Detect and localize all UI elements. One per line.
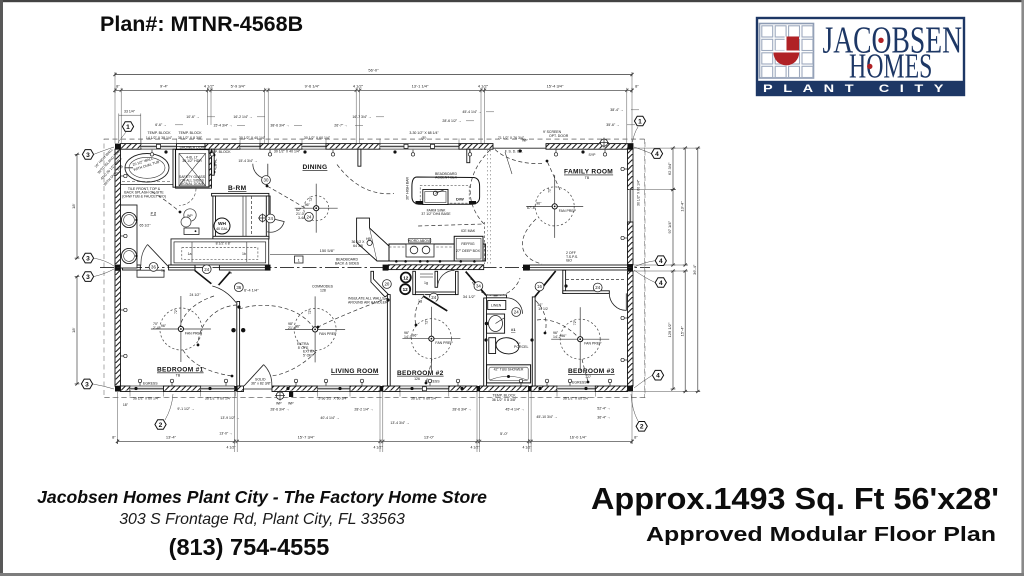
svg-text:4 1/2": 4 1/2"	[470, 445, 480, 449]
svg-text:Approx.1493 Sq. Ft 56'x28': Approx.1493 Sq. Ft 56'x28'	[591, 482, 999, 516]
svg-text:3: 3	[86, 274, 90, 281]
svg-text:129 1/2": 129 1/2"	[667, 322, 672, 337]
svg-text:5' OFF: 5' OFF	[298, 346, 309, 350]
svg-text:1a: 1a	[188, 252, 192, 256]
svg-text:3: 3	[85, 381, 89, 388]
svg-text:45'-10 3/4" →: 45'-10 3/4" →	[536, 415, 557, 419]
svg-text:36'-4" →: 36'-4" →	[597, 416, 610, 420]
svg-text:9'-6 1/4": 9'-6 1/4"	[305, 84, 320, 89]
svg-text:2: 2	[640, 424, 644, 431]
svg-text:# 2: # 2	[151, 211, 157, 216]
svg-text:LINEN: LINEN	[491, 304, 502, 308]
svg-text:D/W: D/W	[456, 197, 464, 202]
svg-text:4: 4	[655, 151, 659, 158]
svg-text:16'-2 1/4" →: 16'-2 1/4" →	[233, 115, 252, 119]
svg-text:72": 72"	[309, 196, 313, 202]
svg-text:Jacobsen Homes Plant City - Th: Jacobsen Homes Plant City - The Factory …	[37, 487, 487, 507]
svg-text:8": 8"	[635, 84, 639, 89]
svg-text:1g: 1g	[424, 281, 428, 285]
svg-text:21'-4": 21'-4"	[288, 326, 298, 330]
svg-text:(813) 754-4555: (813) 754-4555	[169, 534, 330, 560]
svg-text:4 1/2": 4 1/2"	[522, 445, 532, 449]
svg-text:5'-9 3/4": 5'-9 3/4"	[231, 84, 246, 89]
svg-text:4 1/2": 4 1/2"	[226, 445, 236, 449]
svg-text:30 1/2" X 40 1/4": 30 1/2" X 40 1/4"	[239, 136, 266, 140]
svg-text:36 1/2" X 60 1/4": 36 1/2" X 60 1/4"	[411, 396, 438, 400]
svg-text:62 3/4": 62 3/4"	[667, 162, 672, 175]
svg-text:34: 34	[476, 284, 481, 289]
svg-text:16'-7 3/4" →: 16'-7 3/4" →	[352, 115, 371, 119]
svg-text:WORD ABOVE: WORD ABOVE	[408, 239, 433, 243]
svg-text:35'-6" →: 35'-6" →	[606, 123, 619, 127]
svg-text:(8'): (8')	[422, 136, 427, 140]
svg-text:96": 96"	[412, 334, 418, 338]
svg-text:36 1/2" X 8 3/8": 36 1/2" X 8 3/8"	[492, 398, 517, 402]
svg-text:40'-4 1/4" →: 40'-4 1/4" →	[320, 416, 339, 420]
svg-text:13'-4 3/4" →: 13'-4 3/4" →	[390, 421, 409, 425]
svg-text:FAMILY ROOM: FAMILY ROOM	[564, 169, 613, 176]
svg-text:FAN PREP: FAN PREP	[584, 342, 602, 346]
svg-text:71 1/2" X 76 3/4": 71 1/2" X 76 3/4"	[498, 136, 525, 140]
svg-text:LIVING ROOM: LIVING ROOM	[331, 368, 379, 375]
svg-text:15'-7 3/4": 15'-7 3/4"	[298, 435, 315, 440]
svg-text:64 3/8: 64 3/8	[353, 244, 363, 248]
svg-text:1b: 1b	[242, 252, 246, 256]
svg-text:24: 24	[595, 285, 600, 290]
svg-text:4 1/2": 4 1/2"	[373, 445, 383, 449]
svg-text:27" DEEP BOX: 27" DEEP BOX	[456, 249, 481, 253]
svg-text:1b: 1b	[228, 271, 232, 275]
svg-text:14 1/2" X 38 1/4": 14 1/2" X 38 1/4"	[146, 136, 173, 140]
svg-text:F. S. D. DR.: F. S. D. DR.	[505, 150, 524, 154]
svg-text:52'-4" →: 52'-4" →	[597, 407, 610, 411]
svg-text:12: 12	[403, 287, 409, 292]
svg-text:BEDROOM #3: BEDROOM #3	[568, 368, 615, 375]
svg-text:BEDROOM #1: BEDROOM #1	[157, 367, 204, 374]
svg-text:9'-1 1/2" →: 9'-1 1/2" →	[177, 407, 194, 411]
svg-text:96": 96"	[536, 201, 542, 205]
svg-text:TEMP. BLOCK: TEMP. BLOCK	[147, 131, 171, 135]
svg-text:SHOWER DOM: SHOWER DOM	[180, 145, 205, 149]
svg-text:TEMP. BLOCK: TEMP. BLOCK	[492, 394, 516, 398]
svg-text:13'-0" →: 13'-0" →	[219, 432, 232, 436]
svg-text:FAN PREP: FAN PREP	[435, 341, 453, 345]
svg-text:97 1/4": 97 1/4"	[667, 220, 672, 233]
svg-text:303 S Frontage Rd, Plant City,: 303 S Frontage Rd, Plant City, FL 33563	[119, 511, 405, 528]
svg-text:150 5/8": 150 5/8"	[320, 248, 335, 253]
svg-text:8 1/2' x 8': 8 1/2' x 8'	[216, 242, 231, 246]
svg-text:30 1/2" X 40 1/4": 30 1/2" X 40 1/4"	[274, 150, 301, 154]
svg-text:34 1/2": 34 1/2"	[463, 294, 476, 299]
svg-text:2'-4": 2'-4"	[153, 326, 161, 330]
svg-text:36 1/2" X 60 1/4": 36 1/2" X 60 1/4"	[205, 396, 232, 400]
svg-text:9'-4": 9'-4"	[160, 84, 169, 89]
svg-text:TEMP. BLOCK: TEMP. BLOCK	[178, 131, 202, 135]
svg-text:WP: WP	[522, 139, 528, 143]
svg-text:38'-4" →: 38'-4" →	[610, 108, 623, 112]
svg-text:72": 72"	[308, 309, 312, 315]
svg-text:36: 36	[151, 265, 156, 270]
svg-text:14'-2": 14'-2"	[553, 335, 563, 339]
svg-text:13'-0": 13'-0"	[424, 435, 435, 440]
svg-text:PORCEL: PORCEL	[514, 345, 528, 349]
svg-text:96": 96"	[561, 334, 567, 338]
svg-text:WP: WP	[288, 402, 294, 406]
svg-text:1g: 1g	[418, 299, 422, 303]
svg-text:36 1/2" X 60 1/4": 36 1/2" X 60 1/4"	[133, 396, 160, 400]
svg-text:36'-4": 36'-4"	[692, 264, 697, 275]
svg-text:96": 96"	[161, 324, 167, 328]
svg-text:28'-6 3/4" →: 28'-6 3/4" →	[452, 408, 471, 412]
svg-text:1: 1	[126, 124, 130, 131]
svg-text:36" x 82 3/8": 36" x 82 3/8"	[251, 382, 272, 386]
svg-text:AROUND AIR HANDLER: AROUND AIR HANDLER	[348, 300, 388, 304]
svg-text:18': 18'	[71, 327, 76, 332]
svg-text:4: 4	[656, 373, 660, 380]
svg-text:45'-4 1/4" →: 45'-4 1/4" →	[462, 110, 481, 114]
svg-text:36 1/2" X 60 1/4": 36 1/2" X 60 1/4"	[563, 396, 590, 400]
svg-text:Approved Modular Floor Plan: Approved Modular Floor Plan	[646, 523, 996, 546]
svg-text:24: 24	[514, 310, 519, 315]
svg-text:Plan#: MTNR-4568B: Plan#: MTNR-4568B	[100, 12, 303, 36]
svg-text:18': 18'	[71, 203, 76, 208]
svg-text:37 1/2" DH4 BASE: 37 1/2" DH4 BASE	[421, 212, 451, 216]
svg-text:30: 30	[264, 178, 269, 183]
svg-text:BACK & SIDES: BACK & SIDES	[335, 261, 360, 265]
svg-text:14'-0": 14'-0"	[404, 335, 414, 339]
svg-text:TEMP. BLOCK: TEMP. BLOCK	[207, 150, 231, 154]
svg-text:72": 72"	[548, 187, 552, 193]
svg-text:15'-4 3/4" →: 15'-4 3/4" →	[238, 159, 257, 163]
svg-text:56'-0": 56'-0"	[368, 68, 379, 73]
svg-text:B-RM: B-RM	[228, 185, 247, 192]
svg-text:1: 1	[638, 118, 642, 125]
svg-text:15'-4": 15'-4"	[679, 326, 684, 337]
svg-text:38 1/2" X 8 3/8": 38 1/2" X 8 3/8"	[178, 136, 203, 140]
svg-text:15'-4 3/4" →: 15'-4 3/4" →	[213, 124, 232, 128]
svg-text:10'-6" →: 10'-6" →	[186, 115, 199, 119]
svg-text:36 1/2" HDR: 36 1/2" HDR	[182, 159, 202, 163]
svg-text:6'-4 1/4": 6'-4 1/4"	[244, 288, 259, 293]
svg-text:3: 3	[86, 152, 90, 159]
svg-text:WP: WP	[187, 214, 193, 218]
svg-text:96": 96"	[305, 203, 311, 207]
svg-text:TB: TB	[585, 176, 590, 180]
svg-text:13'-4": 13'-4"	[679, 201, 684, 212]
svg-text:24: 24	[268, 216, 273, 221]
svg-text:I&O: I&O	[566, 259, 572, 263]
svg-text:24: 24	[204, 267, 209, 272]
svg-text:5' OFF: 5' OFF	[303, 353, 314, 357]
svg-text:67'-6": 67'-6"	[527, 206, 537, 210]
svg-text:45'-4 1/4" →: 45'-4 1/4" →	[505, 408, 524, 412]
svg-text:128: 128	[320, 288, 326, 292]
svg-text:REFRIG: REFRIG	[461, 242, 475, 246]
svg-text:4: 4	[659, 258, 663, 265]
svg-text:26'-7" →: 26'-7" →	[334, 124, 347, 128]
svg-text:14 1/2: 14 1/2	[538, 307, 548, 311]
svg-text:#1: #1	[511, 327, 516, 332]
svg-text:16'-0 1/4": 16'-0 1/4"	[570, 435, 587, 440]
svg-text:3-30 1/2" X 68 1/4": 3-30 1/2" X 68 1/4"	[409, 131, 439, 135]
svg-text:5'-0": 5'-0"	[500, 431, 509, 436]
svg-text:ACCENT BLK: ACCENT BLK	[435, 176, 458, 180]
svg-text:4: 4	[659, 280, 663, 287]
svg-text:30 1/2" X 60 1/4": 30 1/2" X 60 1/4"	[304, 136, 331, 140]
svg-text:1a: 1a	[161, 269, 165, 273]
svg-text:HB: HB	[366, 237, 372, 241]
svg-text:2: 2	[159, 422, 163, 429]
svg-text:36: 36	[236, 285, 241, 290]
svg-text:72": 72"	[573, 319, 577, 325]
svg-text:16: 16	[537, 284, 542, 289]
svg-text:8": 8"	[116, 84, 120, 89]
svg-text:126: 126	[414, 377, 420, 381]
svg-text:24 1/2": 24 1/2"	[190, 293, 202, 297]
svg-text:65 1/2": 65 1/2"	[140, 224, 152, 228]
svg-text:FAN PREP: FAN PREP	[559, 209, 577, 213]
svg-text:72": 72"	[424, 319, 428, 325]
svg-text:8": 8"	[634, 435, 638, 440]
svg-text:3: 3	[86, 256, 90, 263]
svg-text:4 1/2": 4 1/2"	[353, 84, 364, 89]
svg-text:13'-9 1/2" →: 13'-9 1/2" →	[220, 416, 239, 420]
svg-text:42" TUB SHOWER: 42" TUB SHOWER	[494, 368, 524, 372]
svg-text:28'-6 1/2" →: 28'-6 1/2" →	[442, 119, 461, 123]
svg-text:20: 20	[384, 282, 389, 287]
svg-text:2-36 1/2" X 60 3/4": 2-36 1/2" X 60 3/4"	[318, 396, 348, 400]
svg-text:33 1/4": 33 1/4"	[124, 110, 136, 114]
svg-text:SIGNAL DOME: SIGNAL DOME	[180, 182, 205, 186]
svg-text:28'-2 1/4" →: 28'-2 1/4" →	[354, 408, 373, 412]
svg-text:ICE MAK: ICE MAK	[461, 229, 476, 233]
svg-text:4 1/2": 4 1/2"	[478, 84, 489, 89]
svg-text:15'-4 3/4": 15'-4 3/4"	[547, 84, 564, 89]
svg-text:28'-6 3/4" →: 28'-6 3/4" →	[270, 408, 289, 412]
svg-text:FAN PREP: FAN PREP	[319, 332, 337, 336]
svg-text:30 1/2" X 60 1/4": 30 1/2" X 60 1/4"	[637, 179, 641, 206]
svg-text:4 1/2": 4 1/2"	[204, 84, 215, 89]
svg-text:WP: WP	[276, 402, 282, 406]
svg-text:DINING: DINING	[303, 164, 328, 171]
svg-text:6'-6" →: 6'-6" →	[155, 123, 166, 127]
svg-text:13'-4": 13'-4"	[166, 435, 177, 440]
svg-text:24: 24	[306, 215, 311, 220]
svg-text:OPT. DOOR: OPT. DOOR	[549, 134, 569, 138]
svg-text:EGRESS: EGRESS	[143, 382, 158, 386]
svg-text:18": 18"	[123, 403, 129, 407]
svg-text:8": 8"	[112, 435, 116, 440]
svg-text:72": 72"	[174, 308, 178, 314]
svg-text:12: 12	[403, 275, 409, 280]
svg-text:TB: TB	[176, 374, 181, 378]
svg-text:36" HIGH BAR: 36" HIGH BAR	[406, 177, 410, 200]
svg-text:40 GAL: 40 GAL	[216, 227, 228, 231]
svg-text:BEDROOM #2: BEDROOM #2	[397, 370, 444, 377]
svg-text:HOMES: HOMES	[849, 48, 932, 86]
svg-text:EGRESS: EGRESS	[572, 381, 587, 385]
svg-text:13'-1 1/4": 13'-1 1/4"	[412, 84, 429, 89]
svg-text:SYP: SYP	[588, 153, 596, 157]
svg-text:38'-6 3/4" →: 38'-6 3/4" →	[270, 124, 289, 128]
